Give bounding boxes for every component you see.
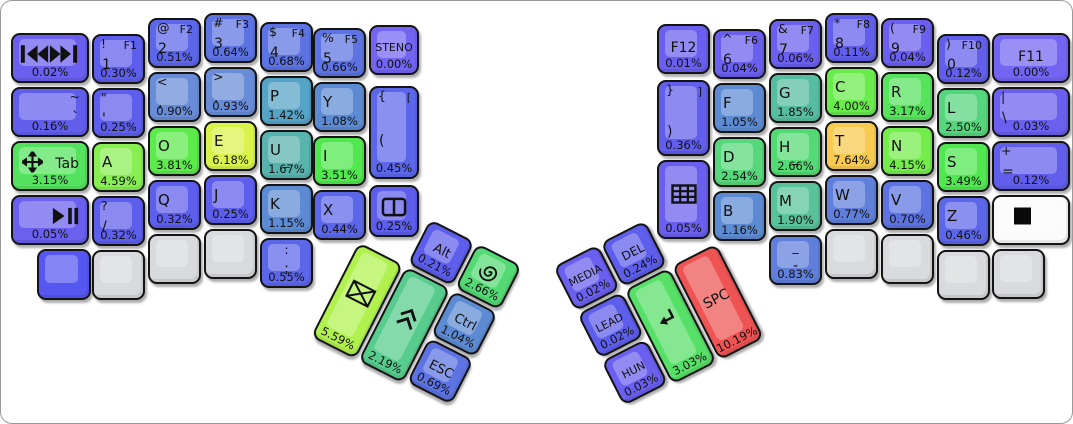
key-q[interactable]: Q0.32% bbox=[148, 180, 201, 230]
key-g[interactable]: G1.85% bbox=[769, 73, 822, 123]
key-v[interactable]: V0.70% bbox=[881, 180, 934, 230]
key-usage-percent: 0.00% bbox=[371, 58, 417, 72]
key-usage-percent: 0.83% bbox=[771, 268, 820, 282]
key-l[interactable]: L2.50% bbox=[937, 88, 990, 138]
keycap-top bbox=[156, 132, 188, 159]
key-usage-percent: 1.85% bbox=[771, 106, 820, 120]
keycap-top bbox=[665, 166, 697, 222]
key-blank-gray-r2[interactable] bbox=[881, 234, 934, 284]
key-usage-percent: 0.01% bbox=[659, 57, 708, 71]
key-period[interactable]: >.0.93% bbox=[204, 67, 257, 117]
keycap-top bbox=[1000, 39, 1057, 66]
keycap-top bbox=[945, 148, 977, 175]
key-usage-percent: 0.44% bbox=[315, 223, 364, 237]
key-usage-percent: 3.17% bbox=[883, 105, 932, 119]
key-9[interactable]: (F990.04% bbox=[881, 18, 934, 68]
keycap-top bbox=[563, 256, 601, 293]
key-usage-percent: 1.67% bbox=[262, 163, 311, 177]
key-media-play-pause[interactable]: 0.05% bbox=[11, 195, 89, 245]
key-media-prev-next[interactable]: 0.02% bbox=[11, 33, 89, 83]
key-usage-percent: 1.90% bbox=[771, 214, 820, 228]
key-comma[interactable]: <,0.90% bbox=[148, 72, 201, 122]
key-usage-percent: 0.46% bbox=[939, 229, 988, 243]
key-equals[interactable]: +=0.12% bbox=[992, 141, 1070, 191]
keycap-top bbox=[721, 143, 753, 170]
keycap-top bbox=[100, 148, 132, 175]
key-blank-gray-l2[interactable] bbox=[148, 234, 201, 284]
key-quote[interactable]: "'0.25% bbox=[92, 88, 145, 138]
keycap-top bbox=[610, 231, 648, 268]
key-usage-percent: 0.36% bbox=[659, 139, 708, 153]
key-usage-percent: 2.50% bbox=[939, 121, 988, 135]
keycap-top bbox=[721, 197, 753, 224]
keycap-top bbox=[377, 92, 406, 162]
keycap-top bbox=[100, 202, 132, 229]
keycap-top bbox=[1000, 147, 1057, 174]
keycap-top bbox=[377, 191, 406, 220]
keycap-top bbox=[777, 79, 809, 106]
key-fn-label: [ bbox=[407, 92, 411, 103]
keycap-top bbox=[945, 40, 977, 67]
key-usage-percent: 3.15% bbox=[13, 174, 87, 188]
keycap-top bbox=[665, 30, 697, 57]
key-usage-percent: 1.16% bbox=[715, 224, 764, 238]
keycap-top bbox=[212, 73, 244, 100]
key-usage-percent: 0.90% bbox=[150, 105, 199, 119]
key-0[interactable]: )F1000.12% bbox=[937, 34, 990, 84]
key-fn-label: ] bbox=[698, 86, 702, 97]
key-usage-percent: 1.15% bbox=[262, 217, 311, 231]
keycap-top bbox=[889, 186, 921, 213]
key-usage-percent: 2.54% bbox=[715, 170, 764, 184]
keycap-top bbox=[156, 240, 188, 267]
keycap-top bbox=[19, 201, 76, 228]
keycap-top bbox=[156, 186, 188, 213]
key-usage-percent: 3.81% bbox=[150, 159, 199, 173]
keycap-top bbox=[721, 89, 753, 116]
key-usage-percent: 4.00% bbox=[827, 100, 876, 114]
key-usage-percent: 0.45% bbox=[371, 162, 417, 176]
keycap-top bbox=[1000, 255, 1032, 282]
key-usage-percent: 0.32% bbox=[150, 213, 199, 227]
keycap-top bbox=[1000, 201, 1057, 228]
key-tab[interactable]: Tab3.15% bbox=[11, 141, 89, 191]
key-y[interactable]: Y1.08% bbox=[313, 82, 366, 132]
key-z[interactable]: Z0.46% bbox=[937, 196, 990, 246]
keycap-top bbox=[377, 31, 406, 58]
key-usage-percent: 0.04% bbox=[715, 62, 764, 76]
keycap-top bbox=[422, 228, 460, 265]
keycap-top bbox=[889, 24, 921, 51]
keycap-top bbox=[611, 350, 649, 387]
key-usage-percent: 0.06% bbox=[771, 52, 820, 66]
keycap-top bbox=[156, 78, 188, 105]
key-usage-percent: 3.51% bbox=[315, 169, 364, 183]
key-h[interactable]: H_2.66% bbox=[769, 127, 822, 177]
key-semicolon[interactable]: :;0.55% bbox=[260, 238, 313, 288]
keycap-top bbox=[268, 82, 300, 109]
key-usage-percent: 0.93% bbox=[206, 100, 255, 114]
key-usage-percent: 7.64% bbox=[827, 154, 876, 168]
key-usage-percent: 0.02% bbox=[13, 66, 87, 80]
key-blank-gray-l3[interactable] bbox=[204, 229, 257, 279]
key-7[interactable]: &F770.06% bbox=[769, 19, 822, 69]
keycap-top bbox=[777, 25, 809, 52]
key-usage-percent: 1.08% bbox=[315, 115, 364, 129]
key-usage-percent: 4.15% bbox=[883, 159, 932, 173]
key-usage-percent: 3.49% bbox=[939, 175, 988, 189]
key-usage-percent: 0.68% bbox=[262, 55, 311, 69]
key-usage-percent: 1.05% bbox=[715, 116, 764, 130]
key-usage-percent: 0.51% bbox=[150, 51, 199, 65]
key-u[interactable]: U_1.67% bbox=[260, 130, 313, 180]
key-s[interactable]: S3.49% bbox=[937, 142, 990, 192]
keycap-top bbox=[100, 256, 132, 283]
key-usage-percent: 0.04% bbox=[883, 51, 932, 65]
keycap-top bbox=[777, 133, 809, 160]
keycap-top bbox=[833, 181, 865, 208]
keycap-top bbox=[421, 347, 459, 384]
key-steno[interactable]: STENO0.00% bbox=[369, 25, 419, 75]
keycap-top bbox=[212, 181, 244, 208]
key-backslash[interactable]: |\0.03% bbox=[992, 87, 1070, 137]
key-6[interactable]: ^F660.04% bbox=[713, 29, 766, 79]
key-5[interactable]: %F550.66% bbox=[313, 28, 366, 78]
key-i[interactable]: I3.51% bbox=[313, 136, 366, 186]
key-f11[interactable]: F110.00% bbox=[992, 33, 1070, 83]
key-grave[interactable]: ~`0.16% bbox=[11, 87, 89, 137]
keycap-top bbox=[19, 39, 76, 66]
keycap-top bbox=[833, 235, 865, 262]
keycap-top bbox=[945, 94, 977, 121]
key-1[interactable]: !F110.30% bbox=[92, 34, 145, 84]
key-j[interactable]: J0.25% bbox=[204, 175, 257, 225]
keycap-top bbox=[833, 73, 865, 100]
keycap-top bbox=[321, 196, 353, 223]
keyboard-heatmap: Alt0.21%2.66%Ctrl1.04%ESC0.69%5.59%2.19%… bbox=[0, 0, 1073, 424]
key-blank-gray-l1[interactable] bbox=[92, 250, 145, 300]
key-b[interactable]: B1.16% bbox=[713, 191, 766, 241]
key-usage-percent: 0.05% bbox=[659, 222, 708, 236]
keycap-top bbox=[833, 19, 865, 46]
key-usage-percent: 0.25% bbox=[371, 220, 417, 234]
keycap-top bbox=[889, 78, 921, 105]
key-usage-percent: 0.11% bbox=[827, 46, 876, 60]
key-x[interactable]: X0.44% bbox=[313, 190, 366, 240]
key-c[interactable]: C4.00% bbox=[825, 67, 878, 117]
keycap-top bbox=[268, 136, 300, 163]
keycap-top bbox=[268, 244, 300, 271]
keycap-top bbox=[156, 24, 188, 51]
keycap-top bbox=[321, 88, 353, 115]
key-usage-percent: 2.66% bbox=[771, 160, 820, 174]
keycap-top bbox=[945, 202, 977, 229]
key-8[interactable]: *F880.11% bbox=[825, 13, 878, 63]
key-blank-gray-r4[interactable] bbox=[992, 249, 1045, 299]
key-blank-gray-r1[interactable] bbox=[825, 229, 878, 279]
key-usage-percent: 0.77% bbox=[827, 208, 876, 222]
key-window-layout[interactable]: 0.25% bbox=[369, 185, 419, 237]
keycap-top bbox=[777, 241, 809, 268]
key-t[interactable]: T7.64% bbox=[825, 121, 878, 171]
key-minus[interactable]: _-0.83% bbox=[769, 235, 822, 285]
keycap-top bbox=[945, 256, 977, 283]
key-usage-percent: 0.66% bbox=[315, 61, 364, 75]
keycap-top bbox=[833, 127, 865, 154]
key-usage-percent: 0.12% bbox=[939, 67, 988, 81]
keycap-top bbox=[45, 255, 78, 283]
key-usage-percent: 0.70% bbox=[883, 213, 932, 227]
keycap-top bbox=[19, 93, 76, 120]
keycap-top bbox=[721, 35, 753, 62]
key-lbracket[interactable]: {[(0.45% bbox=[369, 86, 419, 179]
key-n[interactable]: N4.15% bbox=[881, 126, 934, 176]
key-white-square-key[interactable] bbox=[992, 195, 1070, 245]
key-usage-percent: 0.25% bbox=[206, 208, 255, 222]
keycap-top bbox=[212, 19, 244, 46]
key-usage-percent: 0.12% bbox=[994, 174, 1068, 188]
key-rbracket[interactable]: }])0.36% bbox=[657, 80, 710, 156]
keycap-top bbox=[212, 127, 244, 154]
keycap-top bbox=[100, 94, 132, 121]
key-usage-percent: 0.30% bbox=[94, 67, 143, 81]
keycap-top bbox=[777, 187, 809, 214]
key-usage-percent: 0.00% bbox=[994, 66, 1068, 80]
key-usage-percent: 4.59% bbox=[94, 175, 143, 189]
key-usage-percent: 0.25% bbox=[94, 121, 143, 135]
key-usage-percent: 0.64% bbox=[206, 46, 255, 60]
key-keypad-grid[interactable]: 0.05% bbox=[657, 160, 710, 239]
keycap-top bbox=[470, 252, 508, 289]
keycap-top bbox=[212, 235, 244, 262]
keycap-top bbox=[321, 142, 353, 169]
key-a[interactable]: A4.59% bbox=[92, 142, 145, 192]
key-r[interactable]: R3.17% bbox=[881, 72, 934, 122]
keycap-top bbox=[889, 132, 921, 159]
key-4[interactable]: $F440.68% bbox=[260, 22, 313, 72]
key-usage-percent: 0.05% bbox=[13, 228, 87, 242]
keycap-top bbox=[587, 303, 625, 340]
keycap-top bbox=[100, 40, 132, 67]
key-d[interactable]: D2.54% bbox=[713, 137, 766, 187]
key-m[interactable]: M1.90% bbox=[769, 181, 822, 231]
key-2[interactable]: @F220.51% bbox=[148, 18, 201, 68]
key-blank-blue[interactable] bbox=[37, 249, 91, 300]
keycap-top bbox=[889, 240, 921, 267]
key-3[interactable]: #F330.64% bbox=[204, 13, 257, 63]
keycap-top bbox=[321, 34, 353, 61]
keycap-top bbox=[19, 147, 76, 174]
key-f12[interactable]: F120.01% bbox=[657, 24, 710, 74]
keycap-top bbox=[268, 28, 300, 55]
key-usage-percent: 1.42% bbox=[262, 109, 311, 123]
key-slash[interactable]: ?/0.32% bbox=[92, 196, 145, 246]
keycap-top bbox=[1000, 93, 1057, 120]
key-usage-percent: 0.03% bbox=[994, 120, 1068, 134]
key-k[interactable]: K1.15% bbox=[260, 184, 313, 234]
key-w[interactable]: W0.77% bbox=[825, 175, 878, 225]
key-usage-percent: 0.32% bbox=[94, 229, 143, 243]
key-p[interactable]: P1.42% bbox=[260, 76, 313, 126]
keycap-top bbox=[268, 190, 300, 217]
keycap-top bbox=[665, 86, 697, 139]
key-usage-percent: 0.16% bbox=[13, 120, 87, 134]
key-usage-percent: 0.55% bbox=[262, 271, 311, 285]
key-o[interactable]: O3.81% bbox=[148, 126, 201, 176]
key-usage-percent: 6.18% bbox=[206, 154, 255, 168]
keycap-top bbox=[446, 299, 484, 336]
key-e[interactable]: E6.18% bbox=[204, 121, 257, 171]
key-f[interactable]: F1.05% bbox=[713, 83, 766, 133]
key-blank-gray-r3[interactable] bbox=[937, 250, 990, 300]
